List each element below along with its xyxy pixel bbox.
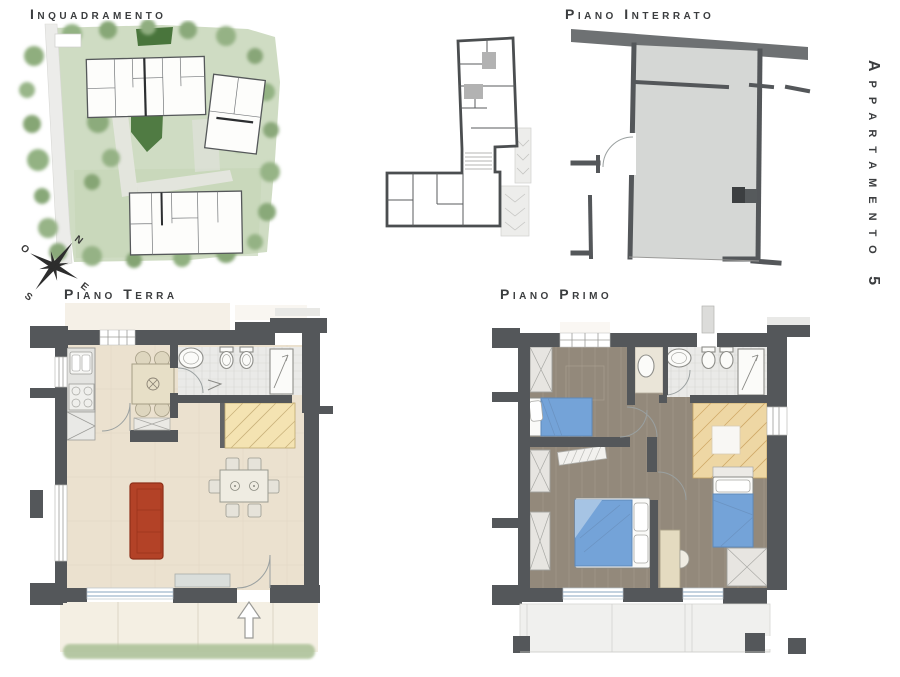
chair	[226, 504, 239, 517]
floorplan-sheet: Inquadramento Piano Interrato Piano Terr…	[0, 0, 900, 677]
grass-strip	[63, 644, 315, 659]
apartment-location-marker	[464, 84, 483, 99]
pillow	[716, 480, 750, 492]
wc-fixture	[638, 355, 654, 377]
key-plan-drawing	[375, 28, 550, 246]
window	[87, 588, 173, 599]
headboard	[713, 467, 753, 477]
stair-block	[732, 187, 745, 203]
building-outline	[387, 38, 517, 226]
doormat	[175, 574, 230, 587]
compass-rose: N O E S	[8, 226, 100, 306]
bathroom	[178, 347, 302, 395]
chair	[248, 504, 261, 517]
stair-block	[745, 189, 757, 203]
shower	[270, 349, 293, 394]
pillow	[529, 400, 543, 421]
window	[683, 588, 723, 599]
apartment-title: Appartamento 5	[864, 60, 882, 294]
chair	[248, 458, 261, 471]
shower	[738, 349, 764, 395]
pillar	[745, 633, 765, 653]
compass-star	[30, 242, 78, 289]
pillow	[634, 503, 648, 531]
compass-north: N	[72, 234, 84, 247]
desk	[660, 530, 680, 588]
sofa	[130, 483, 163, 559]
first-floor-plan	[480, 300, 880, 670]
pillar	[788, 638, 806, 654]
patio	[60, 602, 318, 659]
bathroom	[663, 347, 767, 397]
basement-plan	[565, 25, 860, 270]
stairs	[220, 403, 295, 448]
basement-label: Piano Interrato	[565, 6, 714, 22]
sink	[667, 349, 691, 367]
compass-west: O	[18, 243, 31, 257]
pillar	[513, 636, 530, 653]
chair	[226, 458, 239, 471]
compass-east: E	[78, 281, 90, 294]
dining-table	[220, 470, 268, 502]
cellar-room	[629, 45, 761, 261]
window	[563, 588, 623, 599]
landing	[712, 426, 740, 454]
roof-terrace	[513, 604, 806, 654]
apartment-location-marker	[482, 52, 496, 69]
pillow	[634, 535, 648, 563]
door-opening	[625, 133, 636, 175]
ground-floor-plan	[30, 300, 335, 665]
duct	[702, 306, 714, 333]
sink	[179, 348, 203, 368]
